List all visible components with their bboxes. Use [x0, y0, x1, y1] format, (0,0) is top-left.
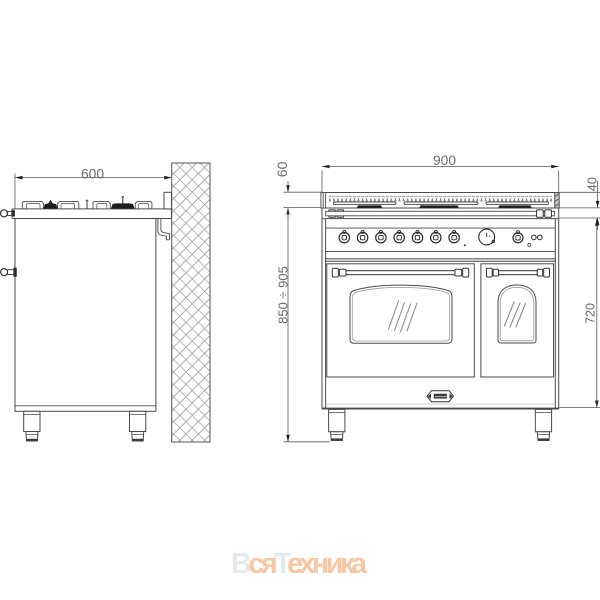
svg-text:900: 900: [433, 153, 456, 168]
svg-text:60: 60: [274, 161, 290, 177]
svg-text:40: 40: [585, 177, 600, 191]
svg-text:720: 720: [584, 303, 598, 324]
svg-text:850 ÷ 905: 850 ÷ 905: [275, 266, 290, 324]
svg-text:600: 600: [81, 166, 104, 181]
svg-text:ВсяТехника: ВсяТехника: [231, 548, 368, 580]
